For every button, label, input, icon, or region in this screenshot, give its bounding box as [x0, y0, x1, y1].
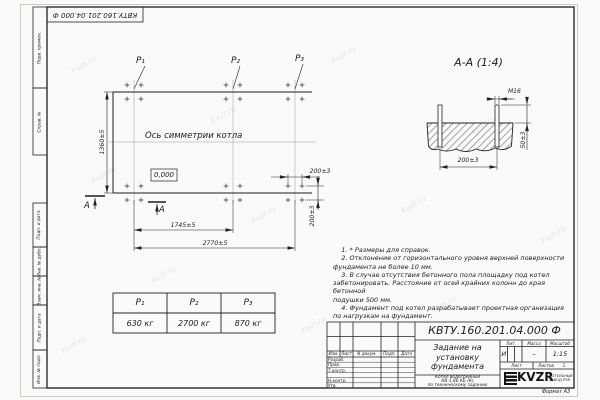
titleblock-sheet-label: Лист [500, 362, 533, 369]
titleblock-lit-value: И [500, 347, 508, 362]
kvzr-logo-caption-2: ЗАВОД РЭП [549, 378, 574, 382]
plan-dim-bolt-vertical: 200±3 [308, 196, 318, 236]
plan-dim-1360: 1360±5 [98, 122, 108, 162]
titleblock-doc-title: Задание на установку фундамента [415, 341, 500, 374]
titleblock-rev-izm: Изм. [327, 351, 340, 357]
plan-dim-1745: 1745±5 [163, 222, 203, 229]
titleblock-mass-value: – [522, 347, 546, 362]
titleblock-role-utv: Утв. [328, 383, 353, 388]
section-thread-m16: М16 [508, 88, 521, 95]
titleblock-rev-list: Лист [340, 351, 353, 357]
titleblock-designation: КВТУ.160.201.04.000 Ф [415, 323, 574, 339]
section-dim-200: 200±3 [448, 157, 488, 164]
plan-load-label-p3: Р₃ [295, 54, 304, 64]
format-label: Формат А3 [538, 389, 574, 395]
load-table-header-p2: Р₂ [167, 294, 221, 313]
load-table-value-p1: 630 кг [113, 314, 167, 333]
section-dim-50: 50±3 [519, 120, 529, 160]
margin-label-vzam-inv: Взам. инв. № [33, 276, 47, 305]
titleblock-mass-label: Масса [522, 341, 546, 347]
drawing-sheet: kvzr.ru kvzr.ru kvzr.ru kvzr.ru kvzr.ru … [0, 0, 600, 400]
margin-label-podp-data-2: Подп. и дата [33, 305, 47, 350]
titleblock-rev-data: Дата [398, 351, 415, 357]
titleblock-lit-label: Лит. [500, 341, 522, 347]
titleblock-scale-value: 1:15 [546, 347, 574, 362]
margin-label-sprav-no: Справ. № [33, 88, 47, 155]
plan-linework [85, 64, 324, 251]
titleblock-rev-dokum: N докум. [353, 351, 381, 357]
titleblock-product-3: по техническому заданию [415, 384, 500, 388]
titleblock-role-tkontr: Т.контр. [328, 368, 353, 373]
titleblock-sheets-value: 1 [557, 362, 571, 369]
titleblock-doc-title-text: Задание на установку фундамента [429, 343, 487, 372]
technical-notes: 1. * Размеры для справок. 2. Отклонение … [333, 246, 576, 321]
corner-stamp-designation: КВТУ.160.201.04.000 Ф [47, 7, 143, 22]
plan-dim-2770: 2770±5 [195, 240, 235, 247]
load-table-value-p2: 2700 кг [167, 314, 221, 333]
plan-section-letter-a1: А [84, 201, 90, 211]
plan-level-mark: 0,000 [151, 169, 177, 181]
plan-section-letter-a2: А [159, 205, 165, 215]
margin-label-inv-podl: Инв. № подл. [33, 350, 47, 388]
margin-label-podp-data-1: Подп. и дата [33, 203, 47, 247]
titleblock-rev-podp: Подп. [381, 351, 398, 357]
load-table-value-p3: 870 кг [221, 314, 275, 333]
load-table-header-p1: Р₁ [113, 294, 167, 313]
plan-dim-bolt-horizontal: 200±3 [301, 168, 339, 175]
margin-label-perv-primen: Перв. примен. [33, 7, 47, 88]
titleblock-scale-label: Масштаб [546, 341, 574, 347]
section-title: А-А (1:4) [436, 56, 521, 69]
plan-load-label-p1: Р₁ [136, 56, 145, 66]
load-table-header-p3: Р₃ [221, 294, 275, 313]
kvzr-logo-icon [504, 372, 517, 385]
plan-symmetry-axis-label: Ось симметрии котла [145, 131, 242, 141]
plan-load-label-p2: Р₂ [231, 56, 240, 66]
titleblock-sheets-label: Листов [535, 362, 557, 369]
margin-label-inv-dubl: Инв. № дубл. [33, 247, 47, 276]
